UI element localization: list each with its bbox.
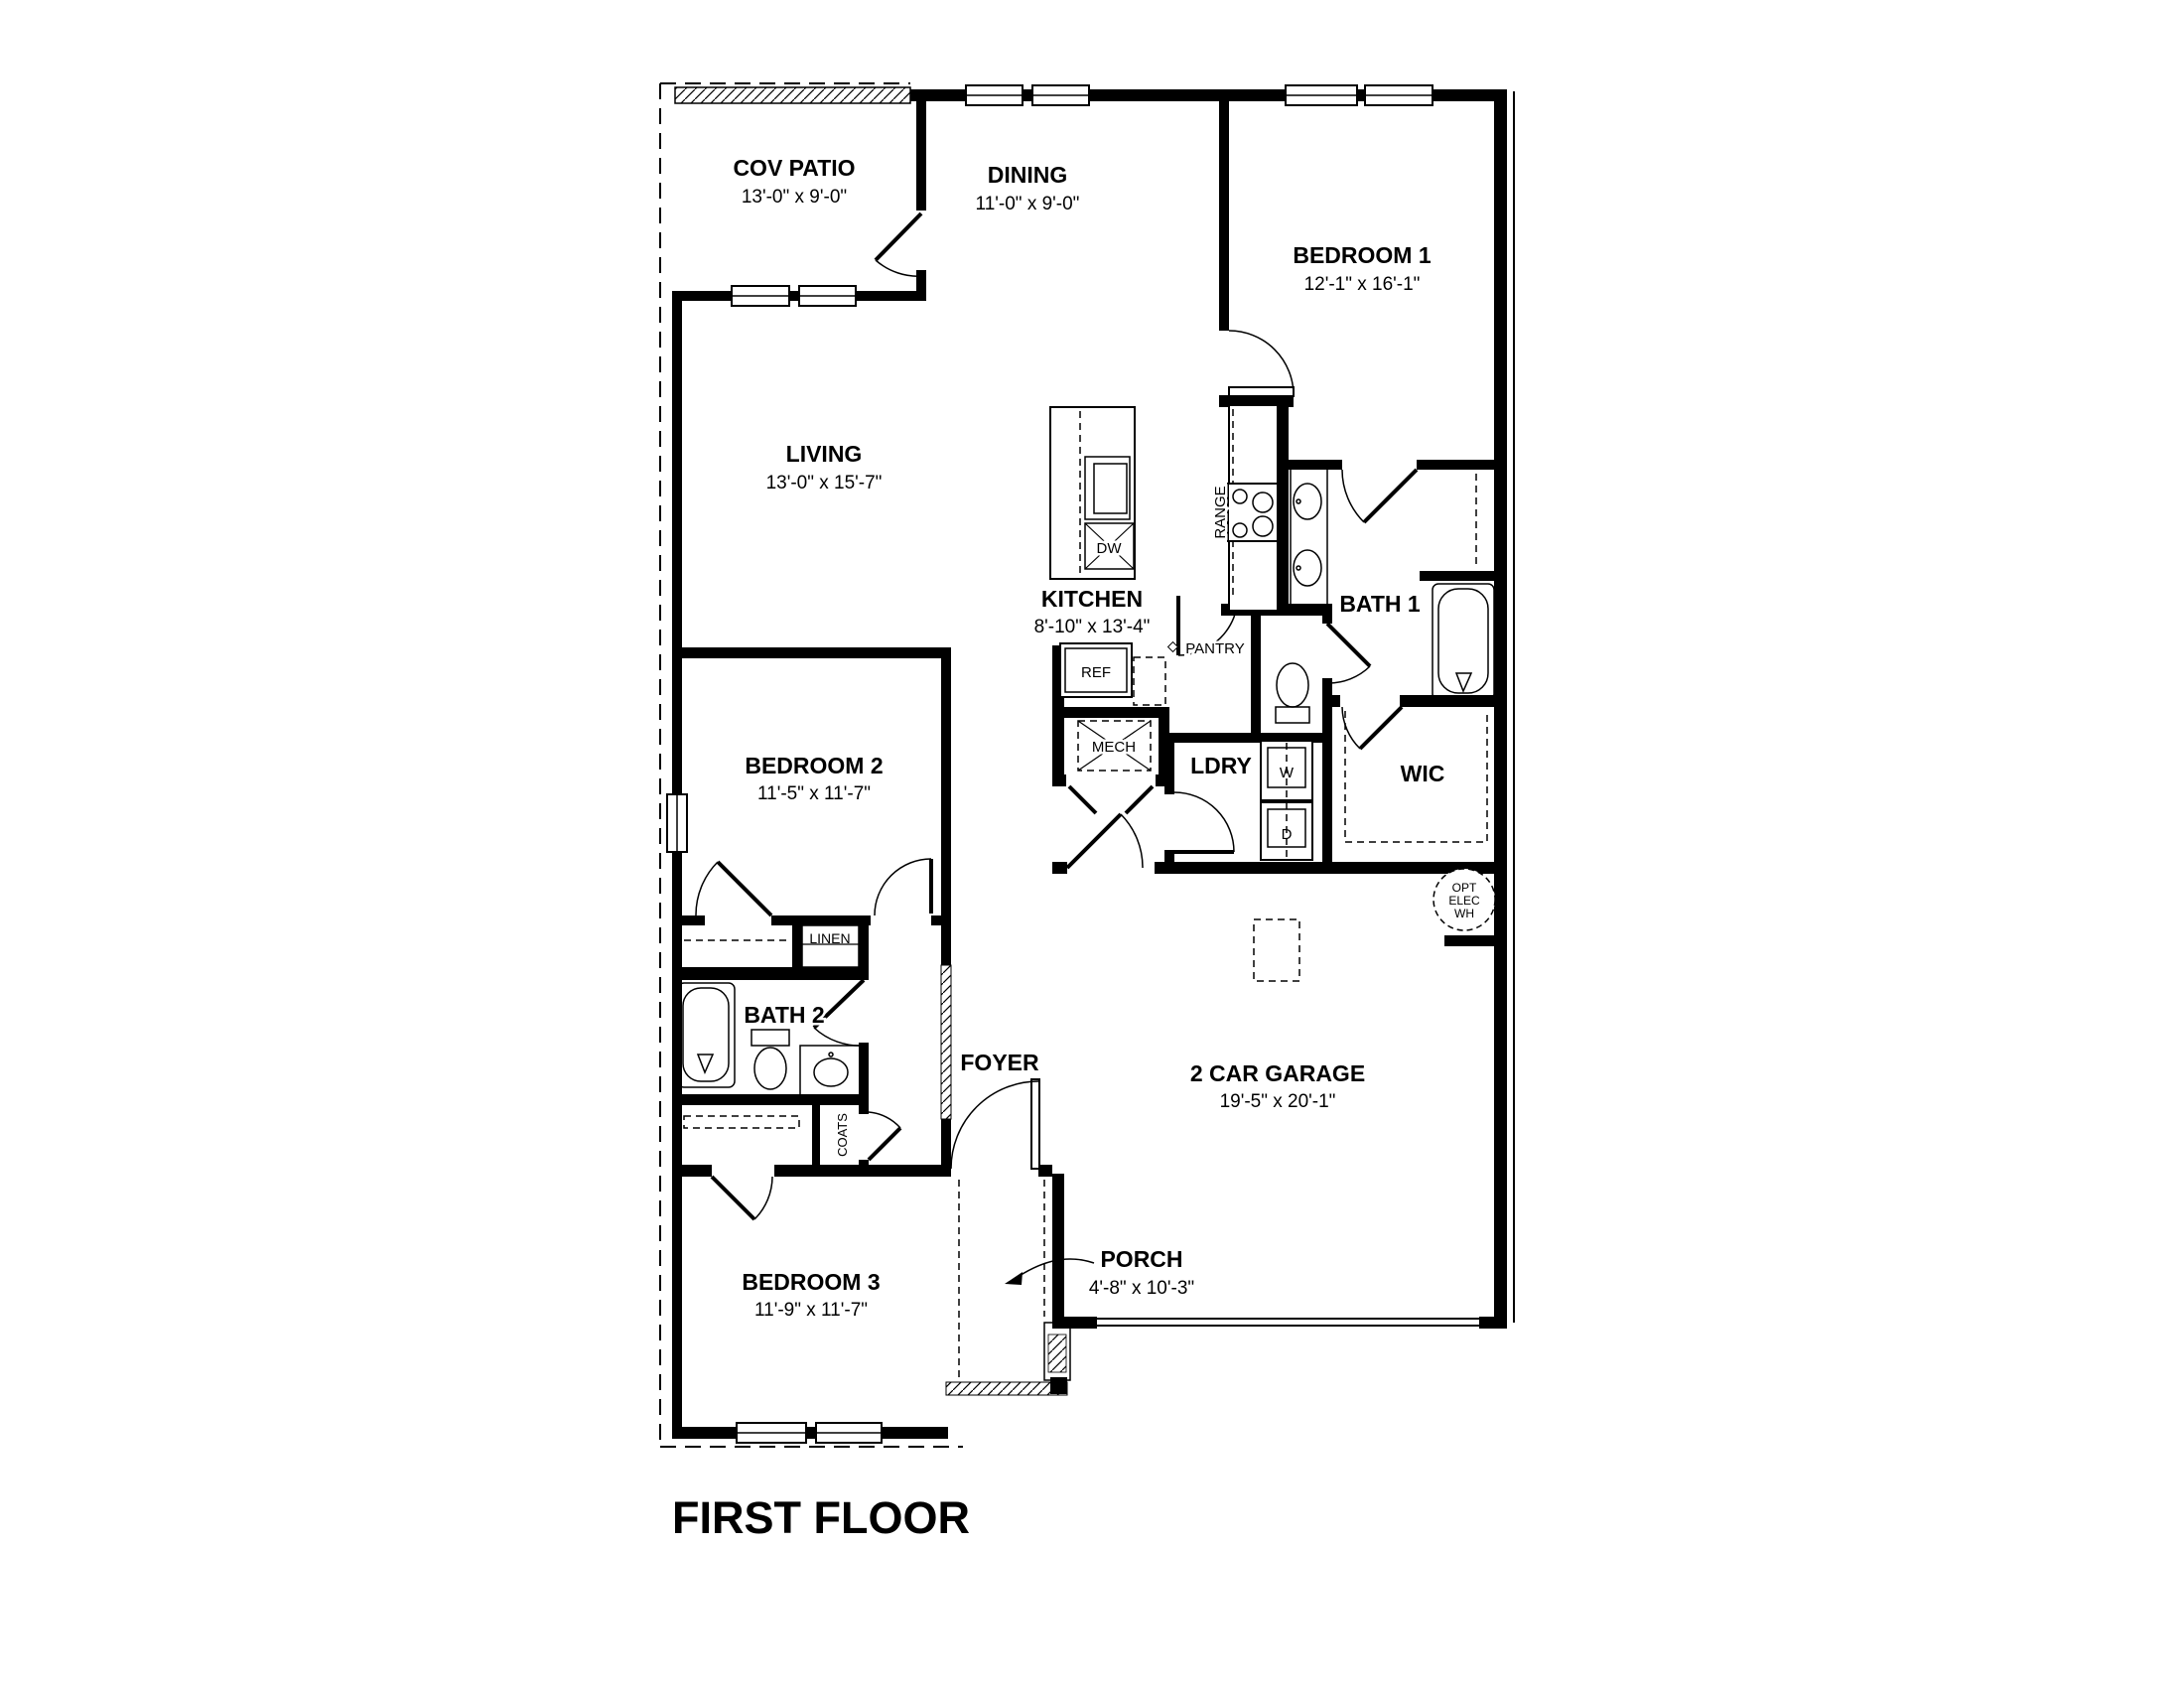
front-door xyxy=(951,1079,1039,1169)
window-icon xyxy=(1286,85,1357,105)
patio-open-edge xyxy=(675,87,910,103)
room-label-living: LIVING xyxy=(786,441,863,467)
room-label-porch: PORCH xyxy=(1100,1246,1182,1272)
range-icon xyxy=(1228,484,1278,541)
room-dims-bedroom2: 11'-5" x 11'-7" xyxy=(757,783,871,804)
bathtub-icon xyxy=(678,983,735,1087)
coats-door xyxy=(869,1112,900,1160)
room-label-bath1: BATH 1 xyxy=(1339,591,1421,617)
toilet-icon xyxy=(1276,663,1309,723)
bedroom2-closet-door xyxy=(696,862,771,915)
room-label-cov-patio: COV PATIO xyxy=(733,155,855,181)
bath2-vanity xyxy=(800,1046,862,1095)
kitchen-cabinet xyxy=(1134,657,1165,705)
attic-access xyxy=(684,1116,799,1128)
bath1-door xyxy=(1342,470,1417,522)
room-label-kitchen: KITCHEN xyxy=(1041,586,1143,612)
fixture-label-mech: MECH xyxy=(1092,739,1136,756)
floor-plan-drawing: COV PATIO 13'-0" x 9'-0" DINING 11'-0" x… xyxy=(0,0,2184,1688)
room-label-bath2: BATH 2 xyxy=(744,1002,824,1028)
wh-label-line2: ELEC xyxy=(1448,894,1480,908)
porch-leader-arrow xyxy=(1005,1259,1094,1285)
room-dims-kitchen: 8'-10" x 13'-4" xyxy=(1034,617,1151,637)
bedroom2-door xyxy=(875,859,931,915)
fixture-label-washer: W xyxy=(1280,765,1295,781)
window-icon xyxy=(799,286,856,306)
water-closet-door xyxy=(1327,624,1370,683)
toilet-icon xyxy=(751,1030,789,1089)
bath2-fixtures xyxy=(678,983,862,1095)
mech-bifold-doors xyxy=(1069,786,1153,813)
bath1-vanity xyxy=(1291,462,1327,609)
kitchen-island xyxy=(1050,407,1135,579)
room-label-wic: WIC xyxy=(1401,761,1445,786)
laundry-door xyxy=(1174,792,1234,852)
room-dims-living: 13'-0" x 15'-7" xyxy=(766,473,883,493)
window-icon xyxy=(732,286,789,306)
room-label-foyer: FOYER xyxy=(960,1050,1039,1075)
room-label-laundry: LDRY xyxy=(1190,753,1252,778)
room-label-bedroom2: BEDROOM 2 xyxy=(745,753,883,778)
porch-features xyxy=(946,1180,1094,1395)
garage-entry-door xyxy=(1067,814,1143,868)
room-dims-garage: 19'-5" x 20'-1" xyxy=(1220,1091,1336,1112)
pantry-marker xyxy=(1168,642,1178,652)
window-icon xyxy=(1032,85,1089,105)
fixture-label-coats: COATS xyxy=(835,1113,850,1157)
fixture-label-dishwasher: DW xyxy=(1097,540,1123,557)
window-icon xyxy=(816,1423,882,1443)
garage-door xyxy=(1097,1319,1479,1326)
window-icon xyxy=(1365,85,1433,105)
room-dims-cov-patio: 13'-0" x 9'-0" xyxy=(742,187,847,208)
garage-post xyxy=(1254,919,1299,981)
window-icon xyxy=(667,794,687,852)
window-icon xyxy=(966,85,1023,105)
room-label-dining: DINING xyxy=(988,162,1068,188)
room-label-bedroom3: BEDROOM 3 xyxy=(742,1269,880,1295)
bedroom3-door xyxy=(712,1177,772,1219)
foyer-cased-opening xyxy=(941,965,951,1119)
floor-plan-page: COV PATIO 13'-0" x 9'-0" DINING 11'-0" x… xyxy=(0,0,2184,1688)
bedroom1-door xyxy=(1229,331,1294,396)
fixture-label-refrigerator: REF xyxy=(1081,664,1111,681)
bathtub-icon xyxy=(1433,584,1494,700)
labels: COV PATIO 13'-0" x 9'-0" DINING 11'-0" x… xyxy=(733,155,1480,1321)
fixture-label-linen: LINEN xyxy=(809,930,850,946)
room-dims-porch: 4'-8" x 10'-3" xyxy=(1089,1278,1194,1299)
fixture-label-range: RANGE xyxy=(1212,486,1229,538)
room-label-garage: 2 CAR GARAGE xyxy=(1190,1060,1365,1086)
kitchen-fixtures xyxy=(1050,405,1278,705)
patio-door xyxy=(876,213,923,276)
wh-label-line3: WH xyxy=(1454,907,1474,920)
room-dims-dining: 11'-0" x 9'-0" xyxy=(976,194,1080,214)
room-dims-bedroom1: 12'-1" x 16'-1" xyxy=(1304,274,1421,295)
window-icon xyxy=(737,1423,806,1443)
fixture-label-dryer: D xyxy=(1282,826,1293,843)
room-label-bedroom1: BEDROOM 1 xyxy=(1293,242,1432,268)
fixture-label-pantry: PANTRY xyxy=(1185,640,1244,657)
page-title: FIRST FLOOR xyxy=(672,1492,970,1543)
wic-door xyxy=(1342,707,1402,749)
room-dims-bedroom3: 11'-9" x 11'-7" xyxy=(754,1300,868,1321)
wh-label-line1: OPT xyxy=(1452,881,1477,895)
